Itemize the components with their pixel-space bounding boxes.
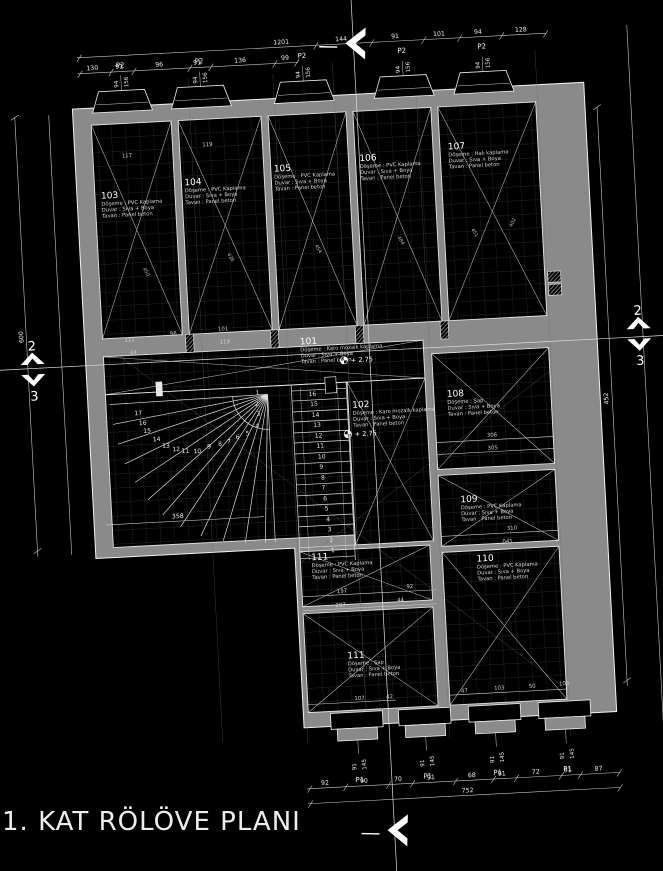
stair-step-number: 3 — [328, 526, 332, 533]
dimension-label: 99 — [281, 55, 289, 62]
window-height: 145 — [430, 755, 437, 766]
window-width: 94 — [296, 71, 302, 79]
window-height: 145 — [570, 748, 577, 759]
window-height: 145 — [362, 758, 369, 769]
dimension-label: 91 — [193, 59, 201, 66]
dimension-label: 68 — [468, 772, 476, 779]
stair-step-number: 14 — [153, 436, 161, 443]
dimension-label: 1201 — [273, 39, 289, 47]
stair-step-number: 15 — [143, 427, 151, 434]
dimension-label: 90 — [360, 778, 368, 785]
dimension-label: 144 — [335, 36, 347, 44]
stair-step-number: 6 — [236, 434, 240, 441]
dimension-label: 91 — [115, 63, 123, 70]
drawing-title: 1. KAT RÖLÖVE PLANI — [2, 805, 301, 837]
stair-step-number: 17 — [134, 410, 142, 417]
level-marker-102: + 2.75 — [344, 429, 377, 439]
dimension-label: 87 — [595, 765, 603, 772]
stair-step-number: 16 — [139, 420, 147, 427]
stair-step-number: 8 — [218, 441, 222, 448]
dimension-label: 94 — [474, 29, 482, 36]
dimension-label: 310 — [507, 525, 518, 532]
stair-step-number: 10 — [193, 448, 201, 455]
stair-step-number: 3 — [256, 411, 260, 418]
dimension-label: 92 — [406, 584, 413, 590]
window-label: P2 — [297, 52, 306, 60]
stair-step-number: 14 — [312, 412, 320, 419]
stair-step-number: 4 — [326, 516, 330, 523]
dimension-label: 70 — [394, 776, 402, 783]
stair-step-number: 6 — [323, 495, 327, 502]
window-height: 145 — [500, 751, 507, 762]
dimension-label: 47 — [461, 688, 468, 694]
window-height: 156 — [405, 61, 412, 72]
dimension-label: 91 — [564, 767, 572, 774]
dimension-label: 72 — [532, 769, 540, 776]
dimension-label: 91 — [498, 770, 506, 777]
window-height: 156 — [124, 76, 131, 87]
stair-step-number: 2 — [255, 401, 259, 408]
stair-step-number: 1 — [331, 547, 335, 554]
section-number-bottom: 3 — [636, 354, 645, 369]
floor-plan-canvas: P2 94 156 P2 94 156 P2 94 156 P2 94 156 … — [0, 0, 663, 871]
section-number-top: 2 — [27, 339, 36, 354]
dimension-stair-width: 358 — [172, 513, 184, 521]
section-number-bottom: 3 — [30, 389, 39, 404]
stair-step-number: 5 — [324, 505, 328, 512]
dimension-label: 44 — [397, 597, 405, 603]
dimension-label: 107 — [354, 696, 365, 703]
stair-step-number: 13 — [313, 422, 321, 429]
stair-step-number: 5 — [245, 430, 249, 437]
stair-step-number: 16 — [308, 391, 316, 398]
dimension-label: 197 — [337, 588, 348, 595]
dimension-label: 306 — [487, 432, 498, 439]
dimension-label: 96 — [155, 61, 163, 68]
dimension-label: 119 — [220, 339, 231, 346]
dimension-total-label: 752 — [462, 787, 474, 795]
dimension-label: 111 — [124, 337, 135, 344]
window-height: 156 — [203, 72, 210, 83]
stair-step-number: 11 — [181, 447, 189, 454]
dimension-label: 103 — [559, 681, 570, 688]
dimension-label: 136 — [234, 57, 246, 65]
dimension-label: 44 — [130, 350, 138, 356]
dimension-left-total: 600 — [18, 331, 26, 343]
dimension-label: 130 — [86, 65, 98, 73]
stair-step-number: 11 — [316, 442, 324, 449]
level-value: + 2.75 — [351, 355, 373, 364]
stair-step-number: 13 — [162, 442, 170, 449]
window-label: P2 — [397, 47, 406, 55]
door-leaf — [156, 382, 163, 396]
dimension-label: 50 — [529, 684, 537, 690]
stair-step-number: 2 — [329, 537, 333, 544]
dimension-label: 96 — [170, 331, 178, 337]
dimension-label: 117 — [122, 153, 133, 160]
window-height: 156 — [485, 57, 492, 68]
window-width: 94 — [114, 80, 120, 88]
stair-step-number: 9 — [207, 443, 211, 450]
dimension-right-total: 452 — [603, 392, 611, 404]
dimension-label: 128 — [515, 26, 527, 34]
window-width: 91 — [420, 759, 426, 767]
window-width: 91 — [560, 752, 566, 760]
level-marker-101: + 2.75 — [340, 355, 373, 365]
stair-step-number: 9 — [319, 463, 323, 470]
stair-step-number: 4 — [255, 423, 259, 430]
door-frame — [325, 377, 337, 394]
stair-step-number: 12 — [315, 432, 323, 439]
stair-step-number: 10 — [318, 453, 326, 460]
stair-step-number: 7 — [321, 484, 325, 491]
window-width: 91 — [352, 763, 358, 771]
stair-step-number: 12 — [172, 446, 180, 453]
stair-step-number: 1 — [255, 390, 259, 397]
stair-step-number: 15 — [310, 401, 318, 408]
dimension-label: 207 — [335, 603, 346, 610]
section-number-top: 2 — [633, 304, 642, 319]
window-width: 94 — [475, 61, 481, 69]
stair-step-number: 7 — [227, 438, 231, 445]
dimension-label: 91 — [427, 774, 435, 781]
dimension-label: 42 — [386, 694, 393, 700]
stair-step-number: 8 — [321, 474, 325, 481]
window-width: 91 — [490, 755, 496, 763]
dimension-label: 119 — [202, 142, 213, 149]
dimension-label: 92 — [321, 780, 329, 787]
dimension-label: 101 — [433, 31, 445, 39]
dimension-label: 041 — [502, 539, 513, 546]
window-width: 94 — [193, 76, 199, 84]
dimension-label: 305 — [487, 445, 498, 452]
dimension-label: 103 — [494, 685, 505, 692]
window-label: P2 — [477, 42, 486, 50]
dimension-label: 91 — [391, 33, 399, 40]
window-width: 94 — [396, 65, 402, 73]
level-value: + 2.75 — [355, 429, 377, 438]
window-height: 156 — [305, 66, 312, 77]
dimension-label: 101 — [218, 326, 229, 333]
